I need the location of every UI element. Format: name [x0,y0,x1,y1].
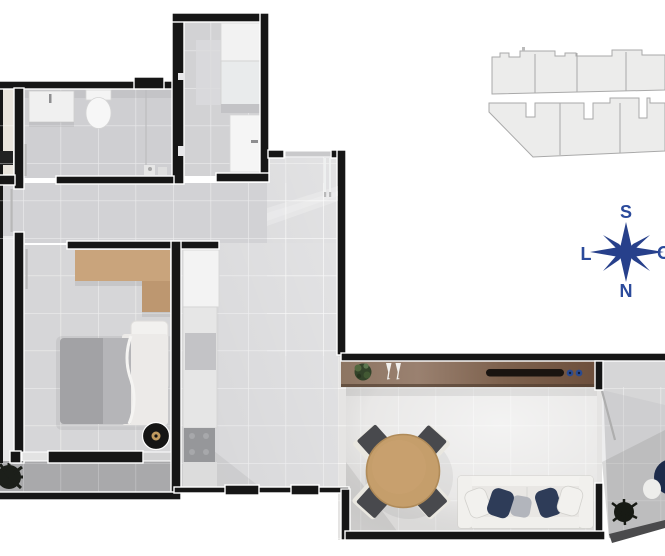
svg-text:S: S [620,202,632,222]
svg-text:N: N [620,281,633,301]
svg-text:O: O [657,243,665,263]
svg-text:L: L [581,244,592,264]
